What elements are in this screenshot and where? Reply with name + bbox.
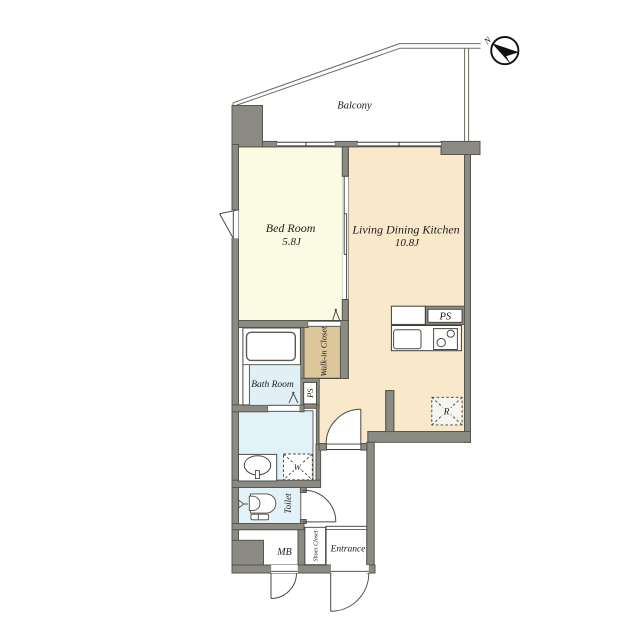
svg-text:Bath Room: Bath Room (251, 380, 294, 390)
svg-text:W.: W. (294, 462, 302, 472)
svg-text:Living Dining Kitchen: Living Dining Kitchen (351, 223, 459, 237)
svg-text:Walk-in Closet: Walk-in Closet (319, 326, 329, 377)
svg-text:Balcony: Balcony (337, 101, 372, 112)
svg-text:PS: PS (438, 312, 451, 323)
svg-text:PS: PS (305, 388, 315, 399)
svg-text:5.8J: 5.8J (282, 236, 302, 248)
svg-text:10.8J: 10.8J (395, 237, 420, 249)
svg-text:Shoes Closet: Shoes Closet (313, 530, 319, 561)
svg-text:Entrance: Entrance (330, 544, 366, 554)
svg-text:Bed Room: Bed Room (266, 221, 316, 235)
svg-text:MB: MB (276, 547, 291, 558)
svg-text:R: R (443, 407, 450, 417)
svg-text:Toilet: Toilet (283, 493, 293, 514)
